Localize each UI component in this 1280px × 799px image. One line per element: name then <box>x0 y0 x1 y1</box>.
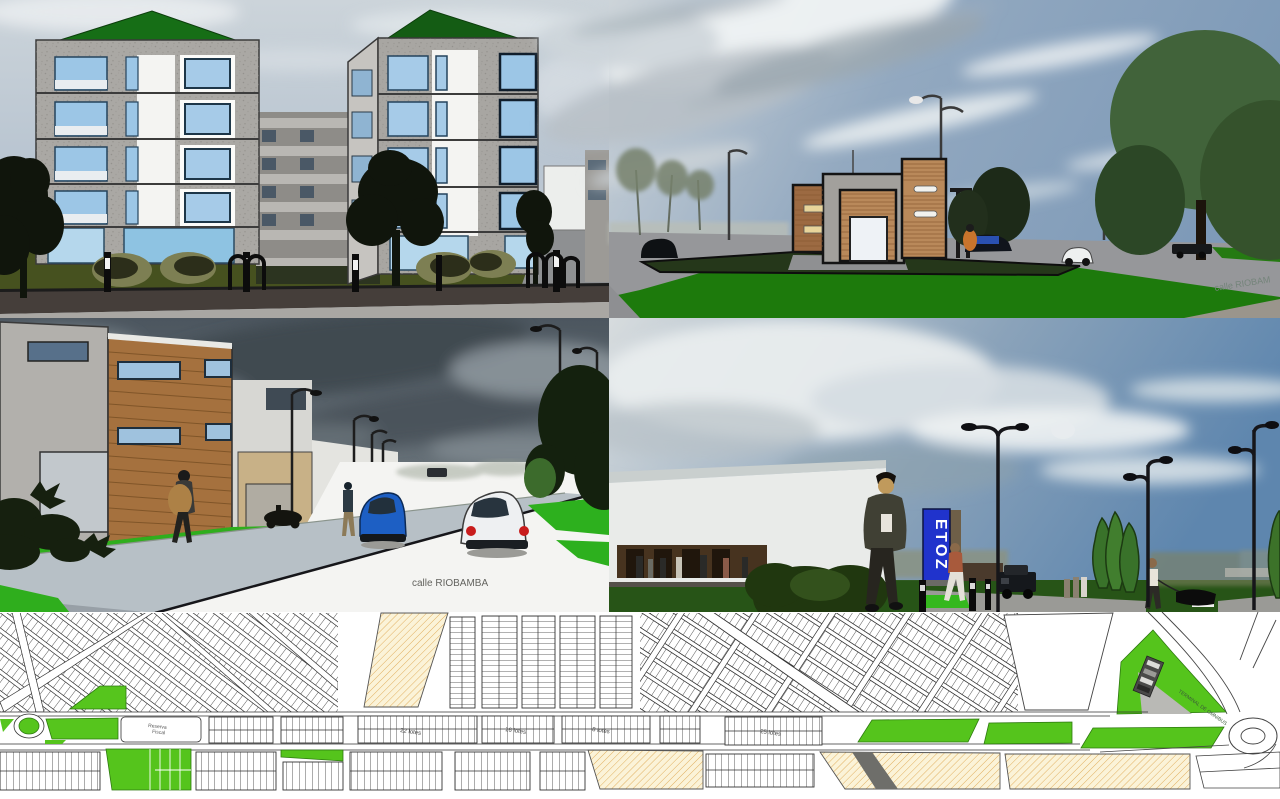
svg-text:calle RIOBAMBA: calle RIOBAMBA <box>412 578 488 589</box>
svg-text:ETOZ: ETOZ <box>932 519 949 571</box>
